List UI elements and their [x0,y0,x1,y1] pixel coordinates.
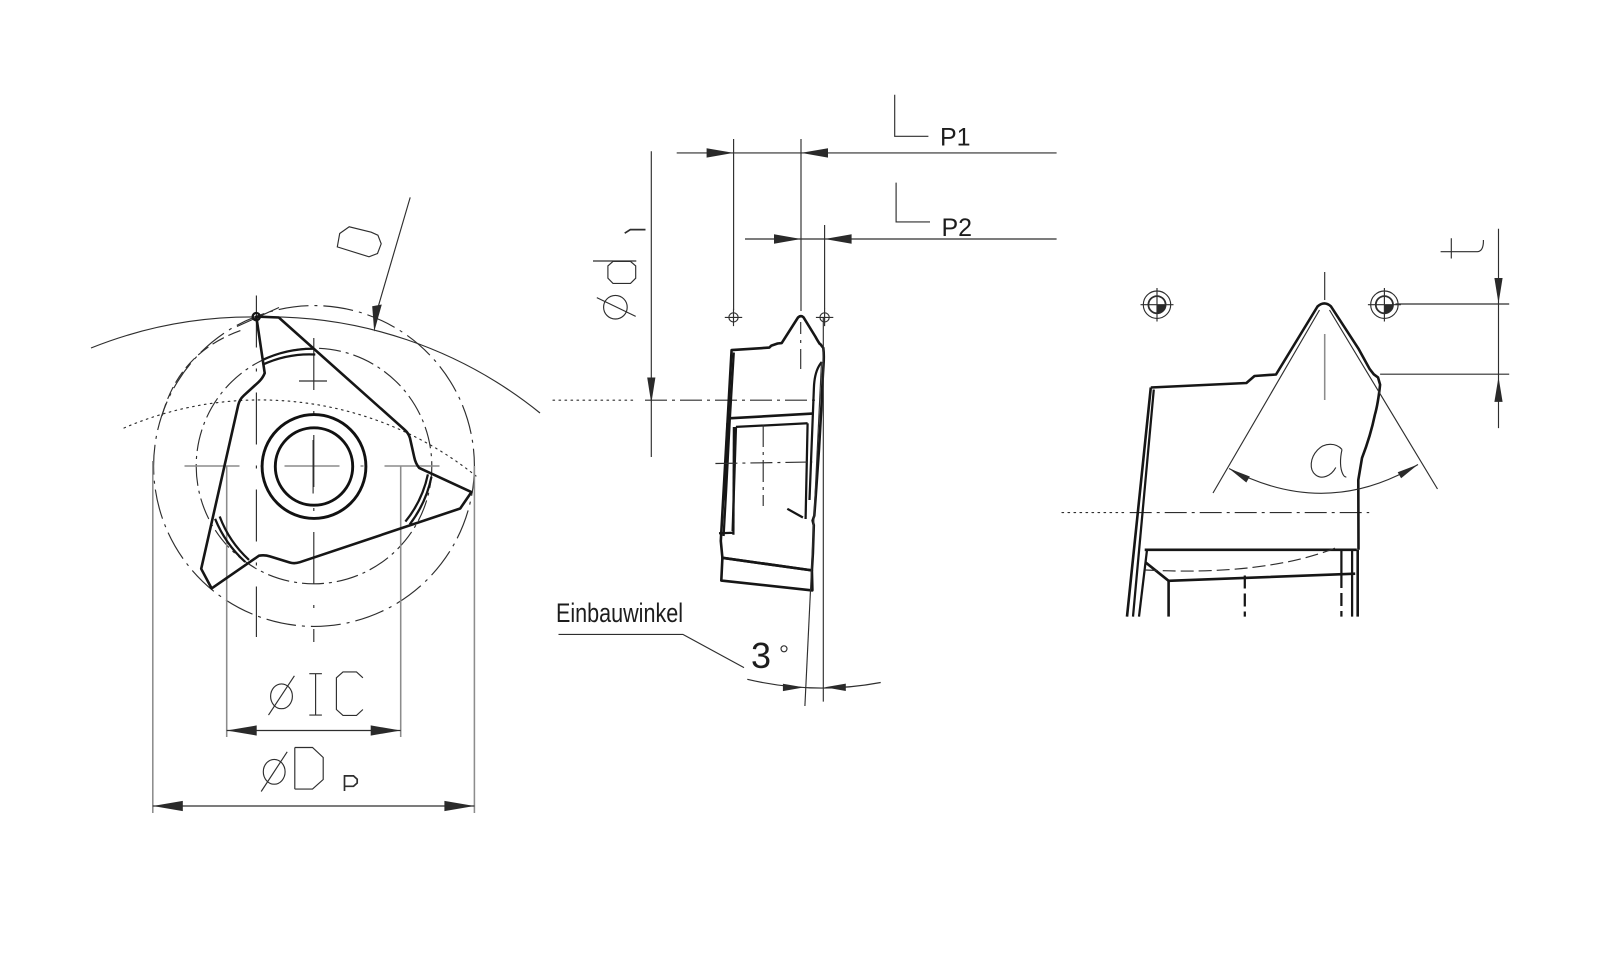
svg-text:P2: P2 [942,214,973,242]
svg-text:Einbauwinkel: Einbauwinkel [556,598,683,628]
svg-text:P1: P1 [940,124,971,152]
svg-text:3: 3 [751,635,771,676]
